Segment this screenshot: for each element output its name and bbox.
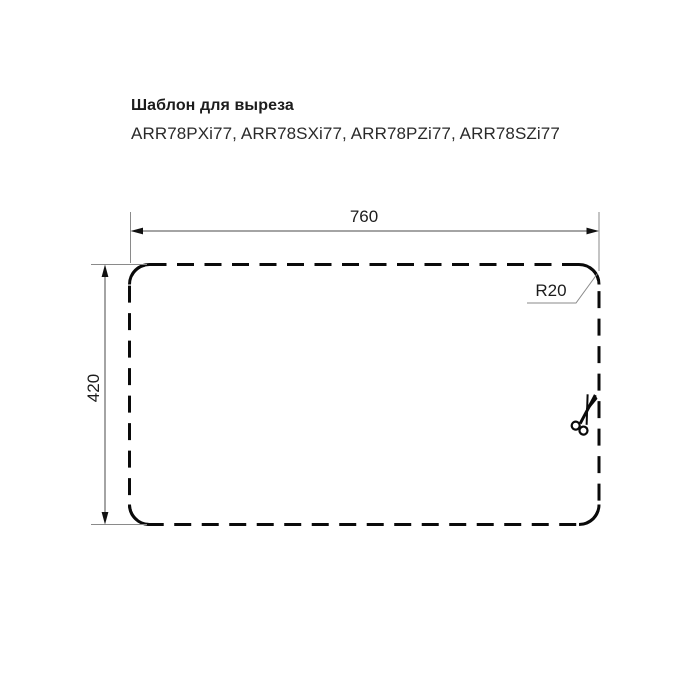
- scissors-handle-right: [578, 425, 588, 435]
- corner-arc-bottom-left: [130, 505, 150, 525]
- dimension-width-label: 760: [350, 207, 378, 226]
- arrowhead-right: [587, 228, 600, 235]
- corner-arc-bottom-right: [579, 505, 599, 525]
- dimension-height: 420: [84, 265, 108, 525]
- corner-arc-top-left: [130, 265, 150, 285]
- arrowhead-down: [102, 512, 109, 525]
- radius-label: R20: [535, 281, 566, 300]
- cutout-diagram: 760 420 R20: [0, 0, 700, 700]
- dimension-height-label: 420: [84, 374, 103, 402]
- dimension-width: 760: [131, 207, 600, 234]
- corner-arc-top-right: [579, 265, 599, 285]
- cutout-template-page: Шаблон для выреза ARR78PXi77, ARR78SXi77…: [0, 0, 700, 700]
- arrowhead-up: [102, 265, 109, 278]
- arrowhead-left: [131, 228, 144, 235]
- extension-lines: [91, 212, 599, 525]
- radius-callout: R20: [527, 274, 598, 304]
- scissors-icon: [570, 391, 600, 436]
